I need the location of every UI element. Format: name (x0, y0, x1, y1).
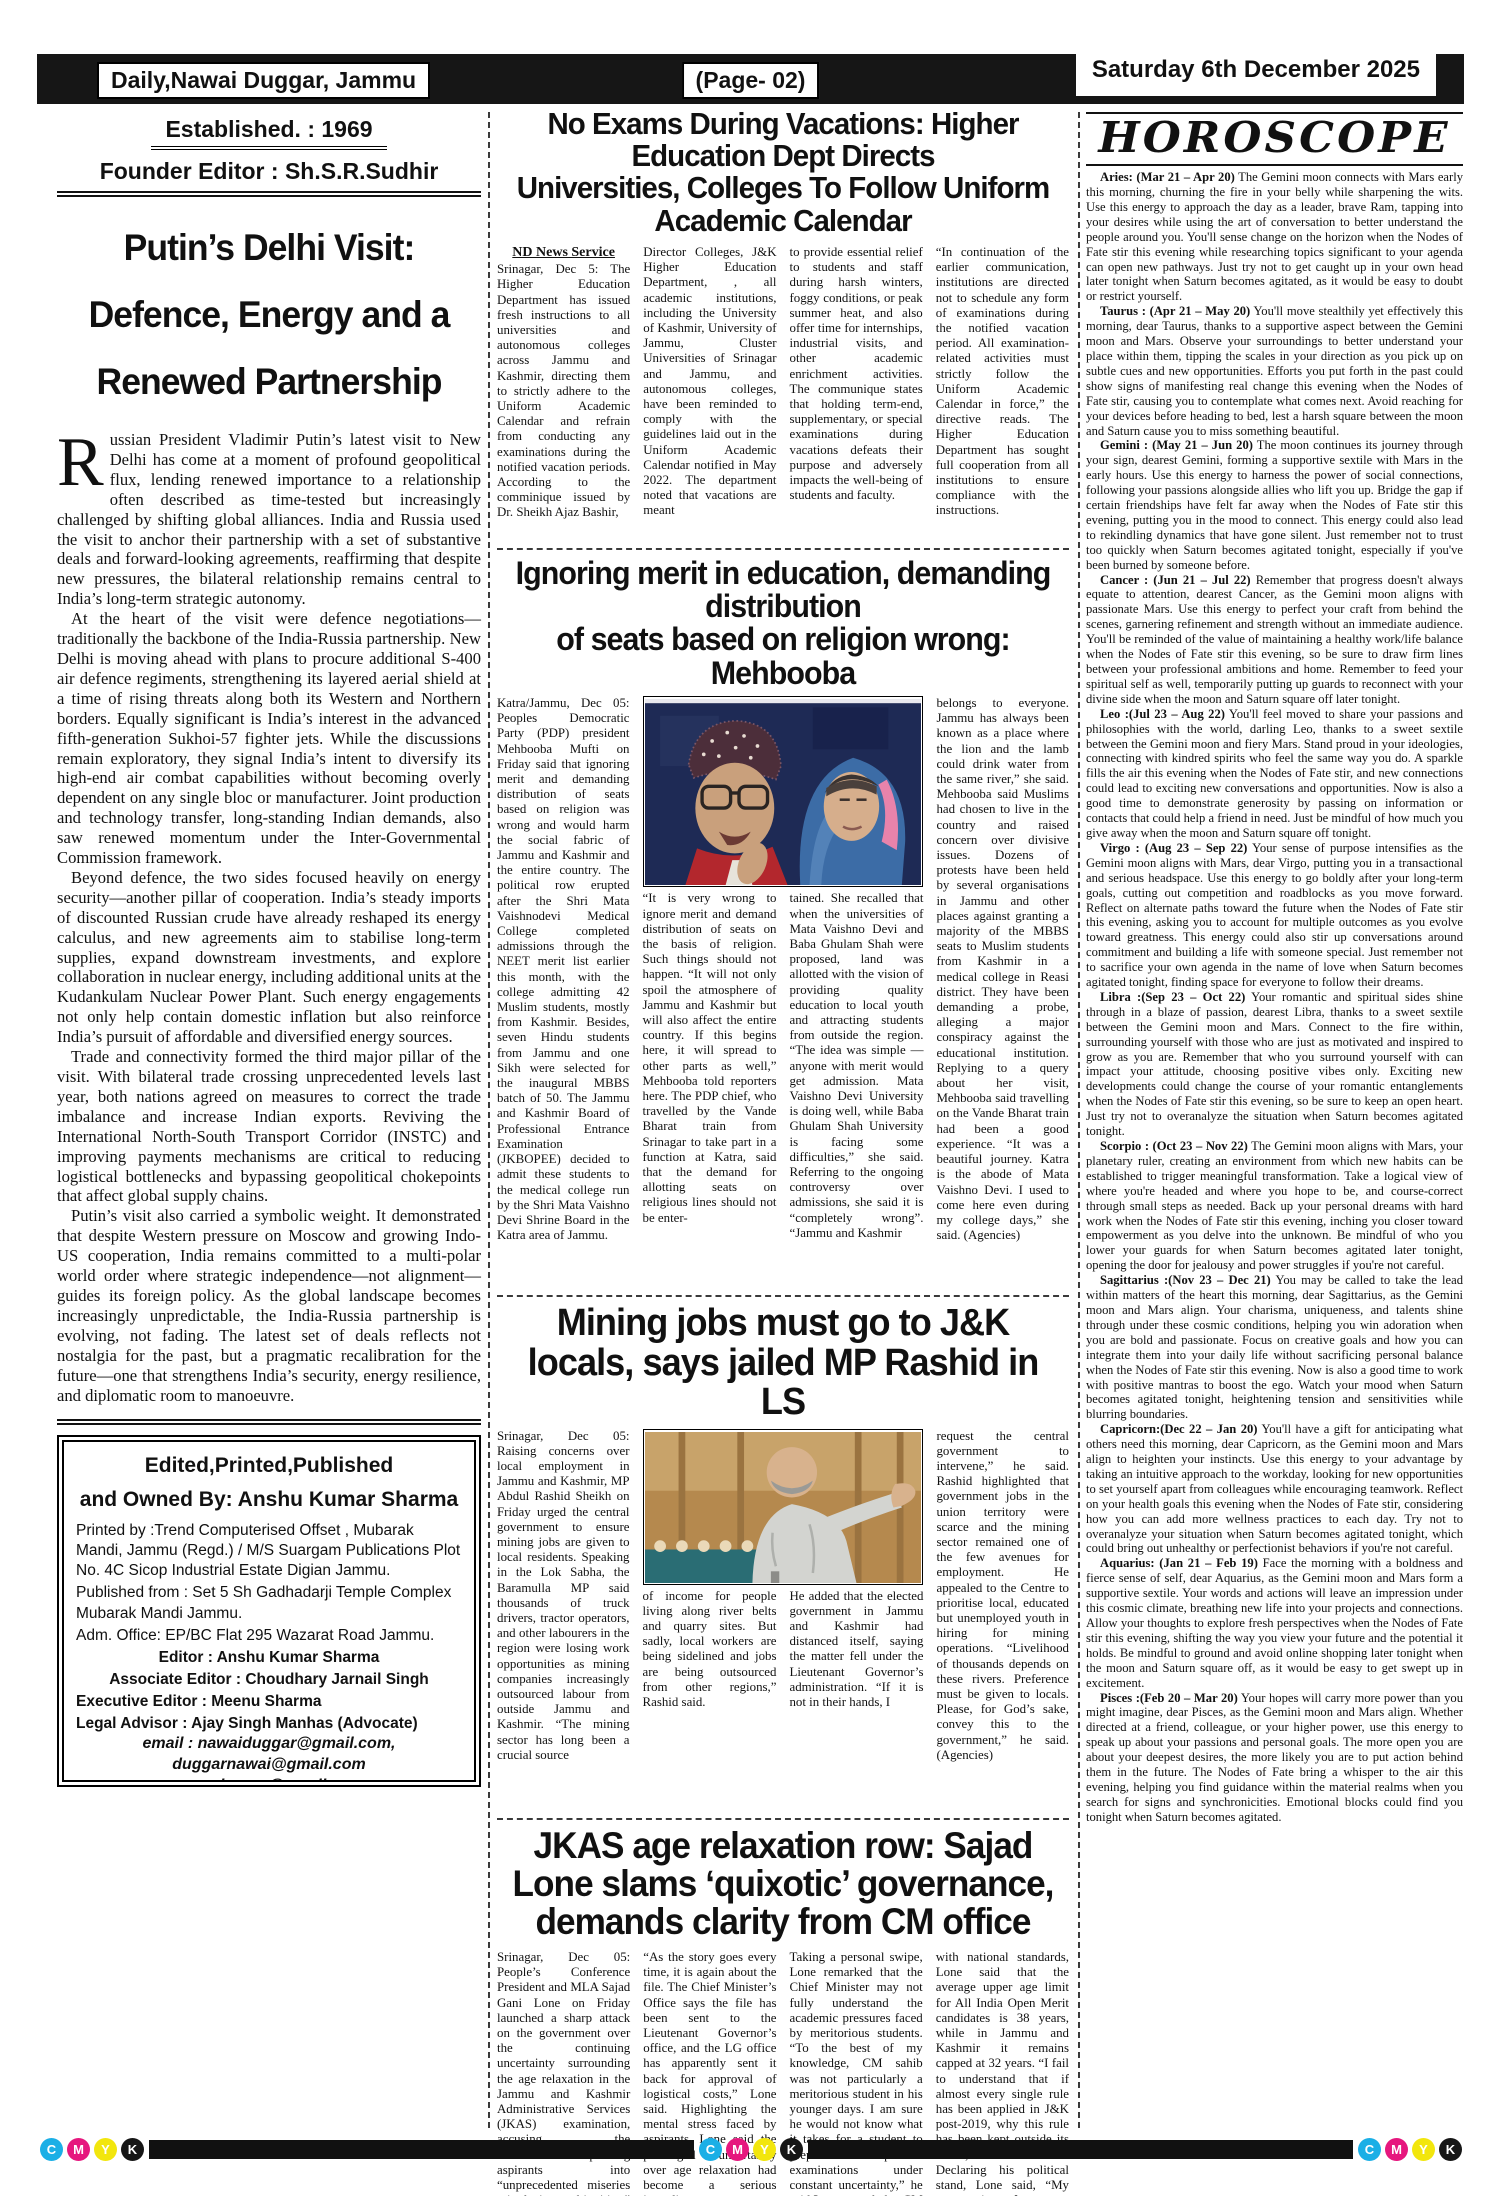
page-number: (Page- 02) (682, 62, 820, 99)
black-mark: K (121, 2138, 144, 2161)
article-divider (497, 1818, 1069, 1820)
paragraph: Trade and connectivity formed the third … (57, 1047, 481, 1206)
photo-illustration (645, 699, 922, 885)
paragraph: Putin’s visit also carried a symbolic we… (57, 1206, 481, 1405)
horoscope-entry-cancer: Cancer : (Jun 21 – Jul 22) Remember that… (1086, 573, 1463, 707)
black-mark: K (1439, 2138, 1462, 2161)
imprint-email: email : nawaiduggar@gmail.com, (76, 1734, 462, 1755)
text-column: “In continuation of the earlier communic… (936, 245, 1069, 541)
horoscope-entry-aries: Aries: (Mar 21 – Apr 20) The Gemini moon… (1086, 170, 1463, 304)
headline-line: Defence, Energy and a (65, 296, 472, 333)
imprint-printed-by: Printed by :Trend Computerised Offset , … (76, 1521, 462, 1581)
imprint-adm-office: Adm. Office: EP/BC Flat 295 Wazarat Road… (76, 1626, 462, 1646)
yellow-mark: Y (94, 2138, 117, 2161)
imprint-email: newsduggar@gmail.com (76, 1776, 462, 1787)
horoscope-entry-leo: Leo :(Jul 23 – Aug 22) You'll feel moved… (1086, 707, 1463, 841)
left-column: Established. : 1969 Founder Editor : Sh.… (57, 116, 481, 1787)
paragraph: Russian President Vladimir Putin’s lates… (57, 430, 481, 609)
horoscope-entry-virgo: Virgo : (Aug 23 – Sep 22) Your sense of … (1086, 841, 1463, 990)
text-column: belongs to everyone. Jammu has always be… (936, 696, 1069, 1288)
text-column: He added that the elected government in … (789, 1589, 923, 1711)
black-mark: K (780, 2138, 803, 2161)
center-cell: of income for people living along river … (643, 1429, 924, 1811)
headline-line: Putin’s Delhi Visit: (65, 229, 472, 266)
magenta-mark: M (67, 2138, 90, 2161)
yellow-mark: Y (753, 2138, 776, 2161)
photo-side-columns: of income for people living along river … (643, 1589, 924, 1711)
triple-rule (57, 191, 481, 199)
horoscope-entry-scorpio: Scorpio : (Oct 23 – Nov 22) The Gemini m… (1086, 1139, 1463, 1273)
magenta-mark: M (726, 2138, 749, 2161)
column-separator-right (1078, 112, 1080, 2128)
imprint-executive-editor: Executive Editor : Meenu Sharma (76, 1692, 462, 1712)
text-column: to provide essential relief to students … (790, 245, 923, 541)
drop-cap: R (57, 430, 110, 491)
mehbooba-omar-photo (643, 696, 924, 887)
issue-date: Saturday 6th December 2025 (1076, 46, 1436, 96)
photo-side-columns: “It is very wrong to ignore merit and de… (643, 891, 924, 1241)
horoscope-entry-libra: Libra :(Sep 23 – Oct 22) Your romantic a… (1086, 990, 1463, 1139)
cmyk-marks-right: C M Y K (1358, 2138, 1462, 2161)
column-separator-left (488, 112, 490, 2128)
imprint-title: Edited,Printed,Published (76, 1452, 462, 1479)
headline-line: Renewed Partnership (65, 363, 472, 400)
imprint-published-from: Published from : Set 5 Sh Gadhadarji Tem… (76, 1583, 462, 1623)
paragraph: At the heart of the visit were defence n… (57, 609, 481, 868)
text-column: ND News Service Srinagar, Dec 5: The Hig… (497, 245, 630, 541)
article-divider (497, 1295, 1069, 1297)
article-no-exams: No Exams During Vacations: Higher Educat… (497, 108, 1069, 541)
imprint-editor: Editor : Anshu Kumar Sharma (76, 1648, 462, 1668)
text-column: of income for people living along river … (643, 1589, 777, 1711)
horoscope-entry-taurus: Taurus : (Apr 21 – May 20) You'll move s… (1086, 304, 1463, 438)
text-column: tained. She recalled that when the unive… (789, 891, 923, 1241)
newspaper-page: Daily,Nawai Duggar, Jammu (Page- 02) Sat… (0, 0, 1500, 2196)
cyan-mark: C (40, 2138, 63, 2161)
no-exams-headline: No Exams During Vacations: Higher Educat… (497, 108, 1069, 237)
article-mining: Mining jobs must go to J&K locals, says … (497, 1304, 1069, 1811)
magenta-mark: M (1385, 2138, 1408, 2161)
registration-bar (808, 2140, 1353, 2159)
photo-illustration (645, 1432, 922, 1583)
horoscope-entry-sagittarius: Sagittarius :(Nov 23 – Dec 21) You may b… (1086, 1273, 1463, 1422)
horoscope-entry-capricorn: Capricorn:(Dec 22 – Jan 20) You'll have … (1086, 1422, 1463, 1556)
horoscope-entry-gemini: Gemini : (May 21 – Jun 20) The moon cont… (1086, 438, 1463, 572)
imprint-legal-advisor: Legal Advisor : Ajay Singh Manhas (Advoc… (76, 1714, 462, 1734)
imprint-box: Edited,Printed,Published and Owned By: A… (57, 1435, 481, 1787)
mehbooba-body: Katra/Jammu, Dec 05: Peoples Democratic … (497, 696, 1069, 1288)
horoscope-entry-aquarius: Aquarius: (Jan 21 – Feb 19) Face the mor… (1086, 1556, 1463, 1690)
triple-rule (57, 1419, 481, 1427)
byline: ND News Service (497, 245, 630, 260)
cyan-mark: C (699, 2138, 722, 2161)
imprint-associate-editor: Associate Editor : Choudhary Jarnail Sin… (76, 1670, 462, 1690)
paragraph: Beyond defence, the two sides focused he… (57, 868, 481, 1047)
mehbooba-headline: Ignoring merit in education, demanding d… (497, 557, 1069, 690)
horoscope-title: HOROSCOPE (1078, 114, 1470, 164)
rashid-photo (643, 1429, 924, 1585)
jkas-headline: JKAS age relaxation row: Sajad Lone slam… (497, 1827, 1069, 1942)
text-column: Katra/Jammu, Dec 05: Peoples Democratic … (497, 696, 630, 1288)
cmyk-registration-strip: C M Y K C M Y K C M Y K (40, 2136, 1462, 2162)
paper-title: Daily,Nawai Duggar, Jammu (97, 62, 430, 99)
imprint-email: duggarnawai@gmail.com (76, 1755, 462, 1776)
imprint-owner: and Owned By: Anshu Kumar Sharma (76, 1486, 462, 1513)
horoscope-column: HOROSCOPE Aries: (Mar 21 – Apr 20) The G… (1086, 112, 1463, 2136)
yellow-mark: Y (1412, 2138, 1435, 2161)
horoscope-entry-pisces: Pisces :(Feb 20 – Mar 20) Your hopes wil… (1086, 1691, 1463, 1825)
article-divider (497, 548, 1069, 550)
putin-article-body: Russian President Vladimir Putin’s lates… (57, 430, 481, 1405)
masthead-bar: Daily,Nawai Duggar, Jammu (Page- 02) Sat… (37, 54, 1464, 104)
horoscope-title-rule (1086, 164, 1463, 166)
mining-body: Srinagar, Dec 05: Raising concerns over … (497, 1429, 1069, 1811)
founder-editor-line: Founder Editor : Sh.S.R.Sudhir (57, 158, 481, 191)
text-column: Director Colleges, J&K Higher Education … (643, 245, 776, 541)
cyan-mark: C (1358, 2138, 1381, 2161)
putin-article-headline: Putin’s Delhi Visit: Defence, Energy and… (57, 229, 481, 400)
no-exams-columns: ND News Service Srinagar, Dec 5: The Hig… (497, 245, 1069, 541)
article-mehbooba: Ignoring merit in education, demanding d… (497, 557, 1069, 1288)
center-column: No Exams During Vacations: Higher Educat… (497, 108, 1069, 2196)
mining-headline: Mining jobs must go to J&K locals, says … (497, 1304, 1069, 1423)
text-column: request the central government to interv… (936, 1429, 1069, 1811)
center-cell: “It is very wrong to ignore merit and de… (643, 696, 924, 1288)
registration-bar (149, 2140, 694, 2159)
cmyk-marks-left: C M Y K (40, 2138, 144, 2161)
horoscope-entries: Aries: (Mar 21 – Apr 20) The Gemini moon… (1086, 170, 1463, 2136)
text-column: “It is very wrong to ignore merit and de… (643, 891, 777, 1241)
text-column: Srinagar, Dec 05: Raising concerns over … (497, 1429, 630, 1811)
established-line: Established. : 1969 (151, 116, 386, 150)
cmyk-marks-center: C M Y K (699, 2138, 803, 2161)
